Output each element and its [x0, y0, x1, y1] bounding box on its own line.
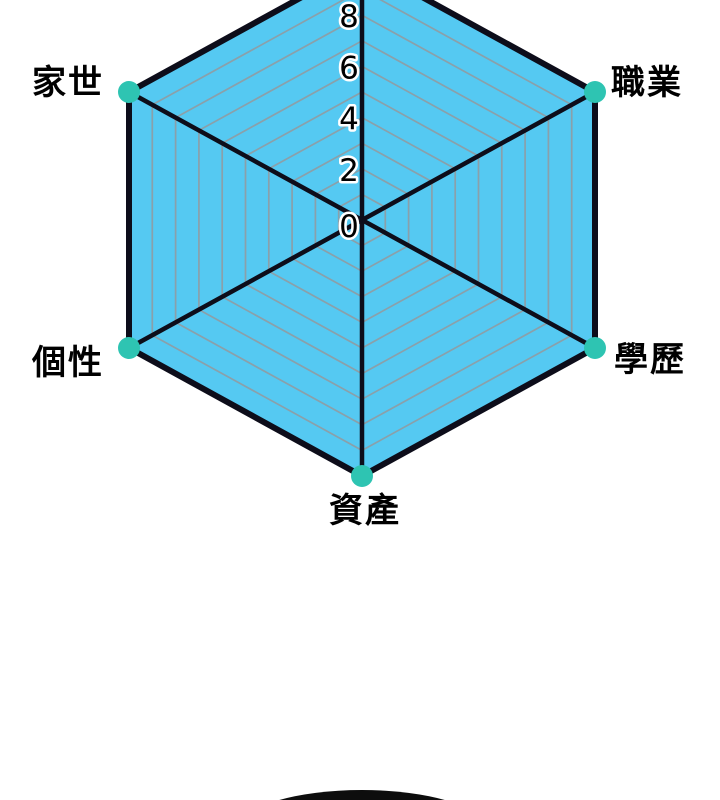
tick-label: 0 [339, 209, 359, 245]
axis-label-occupation: 職業 [611, 63, 683, 103]
tick-label: 8 [339, 0, 359, 35]
tick-label: 2 [339, 153, 359, 189]
data-point [118, 81, 140, 103]
data-point [584, 81, 606, 103]
data-point [118, 337, 140, 359]
data-point [584, 337, 606, 359]
tick-label: 6 [339, 50, 359, 86]
radar-chart-svg: 0 2 4 6 8 職業 學歷 資產 個性 家世 [0, 0, 720, 800]
speech-bubble-top-arc [241, 790, 483, 800]
axis-label-personality: 個性 [31, 343, 104, 383]
axis-label-assets: 資產 [329, 491, 401, 531]
radar-chart-figure: 0 2 4 6 8 職業 學歷 資產 個性 家世 [0, 0, 720, 800]
tick-label: 4 [339, 102, 359, 138]
axis-label-family: 家世 [32, 63, 104, 103]
data-point [351, 465, 373, 487]
axis-label-education: 學歷 [614, 340, 686, 380]
